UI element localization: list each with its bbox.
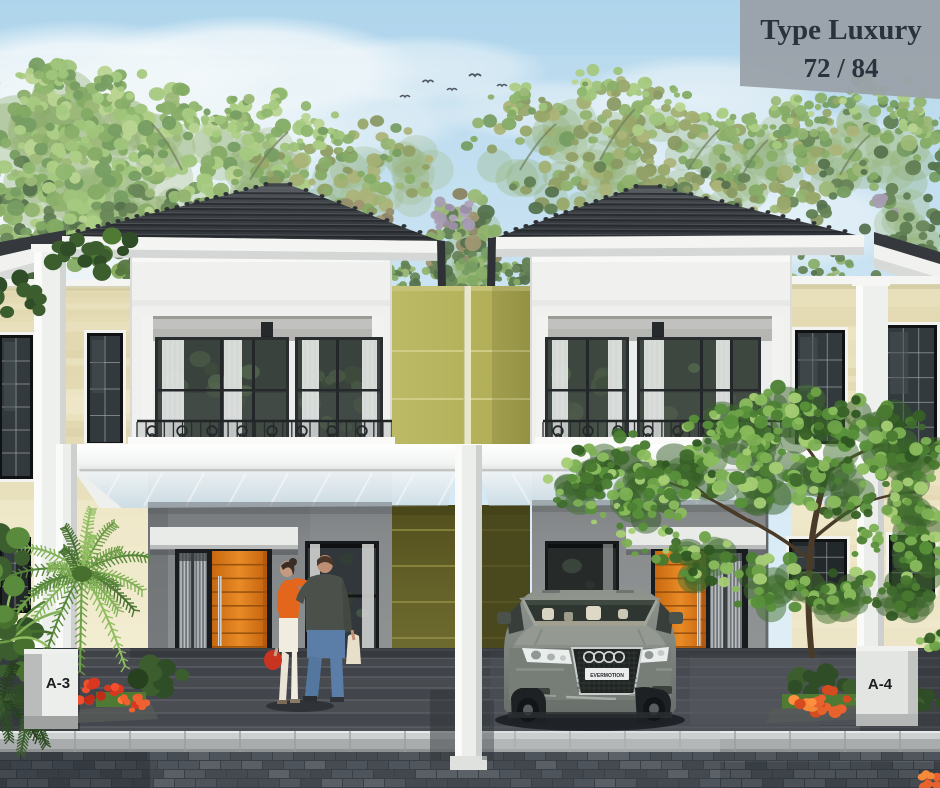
svg-text:A-3: A-3 [46,675,70,692]
svg-text:EVERMOTION: EVERMOTION [590,673,624,679]
svg-text:72 / 84: 72 / 84 [803,53,878,83]
svg-text:A-4: A-4 [868,676,893,693]
svg-text:Type Luxury: Type Luxury [760,14,922,46]
